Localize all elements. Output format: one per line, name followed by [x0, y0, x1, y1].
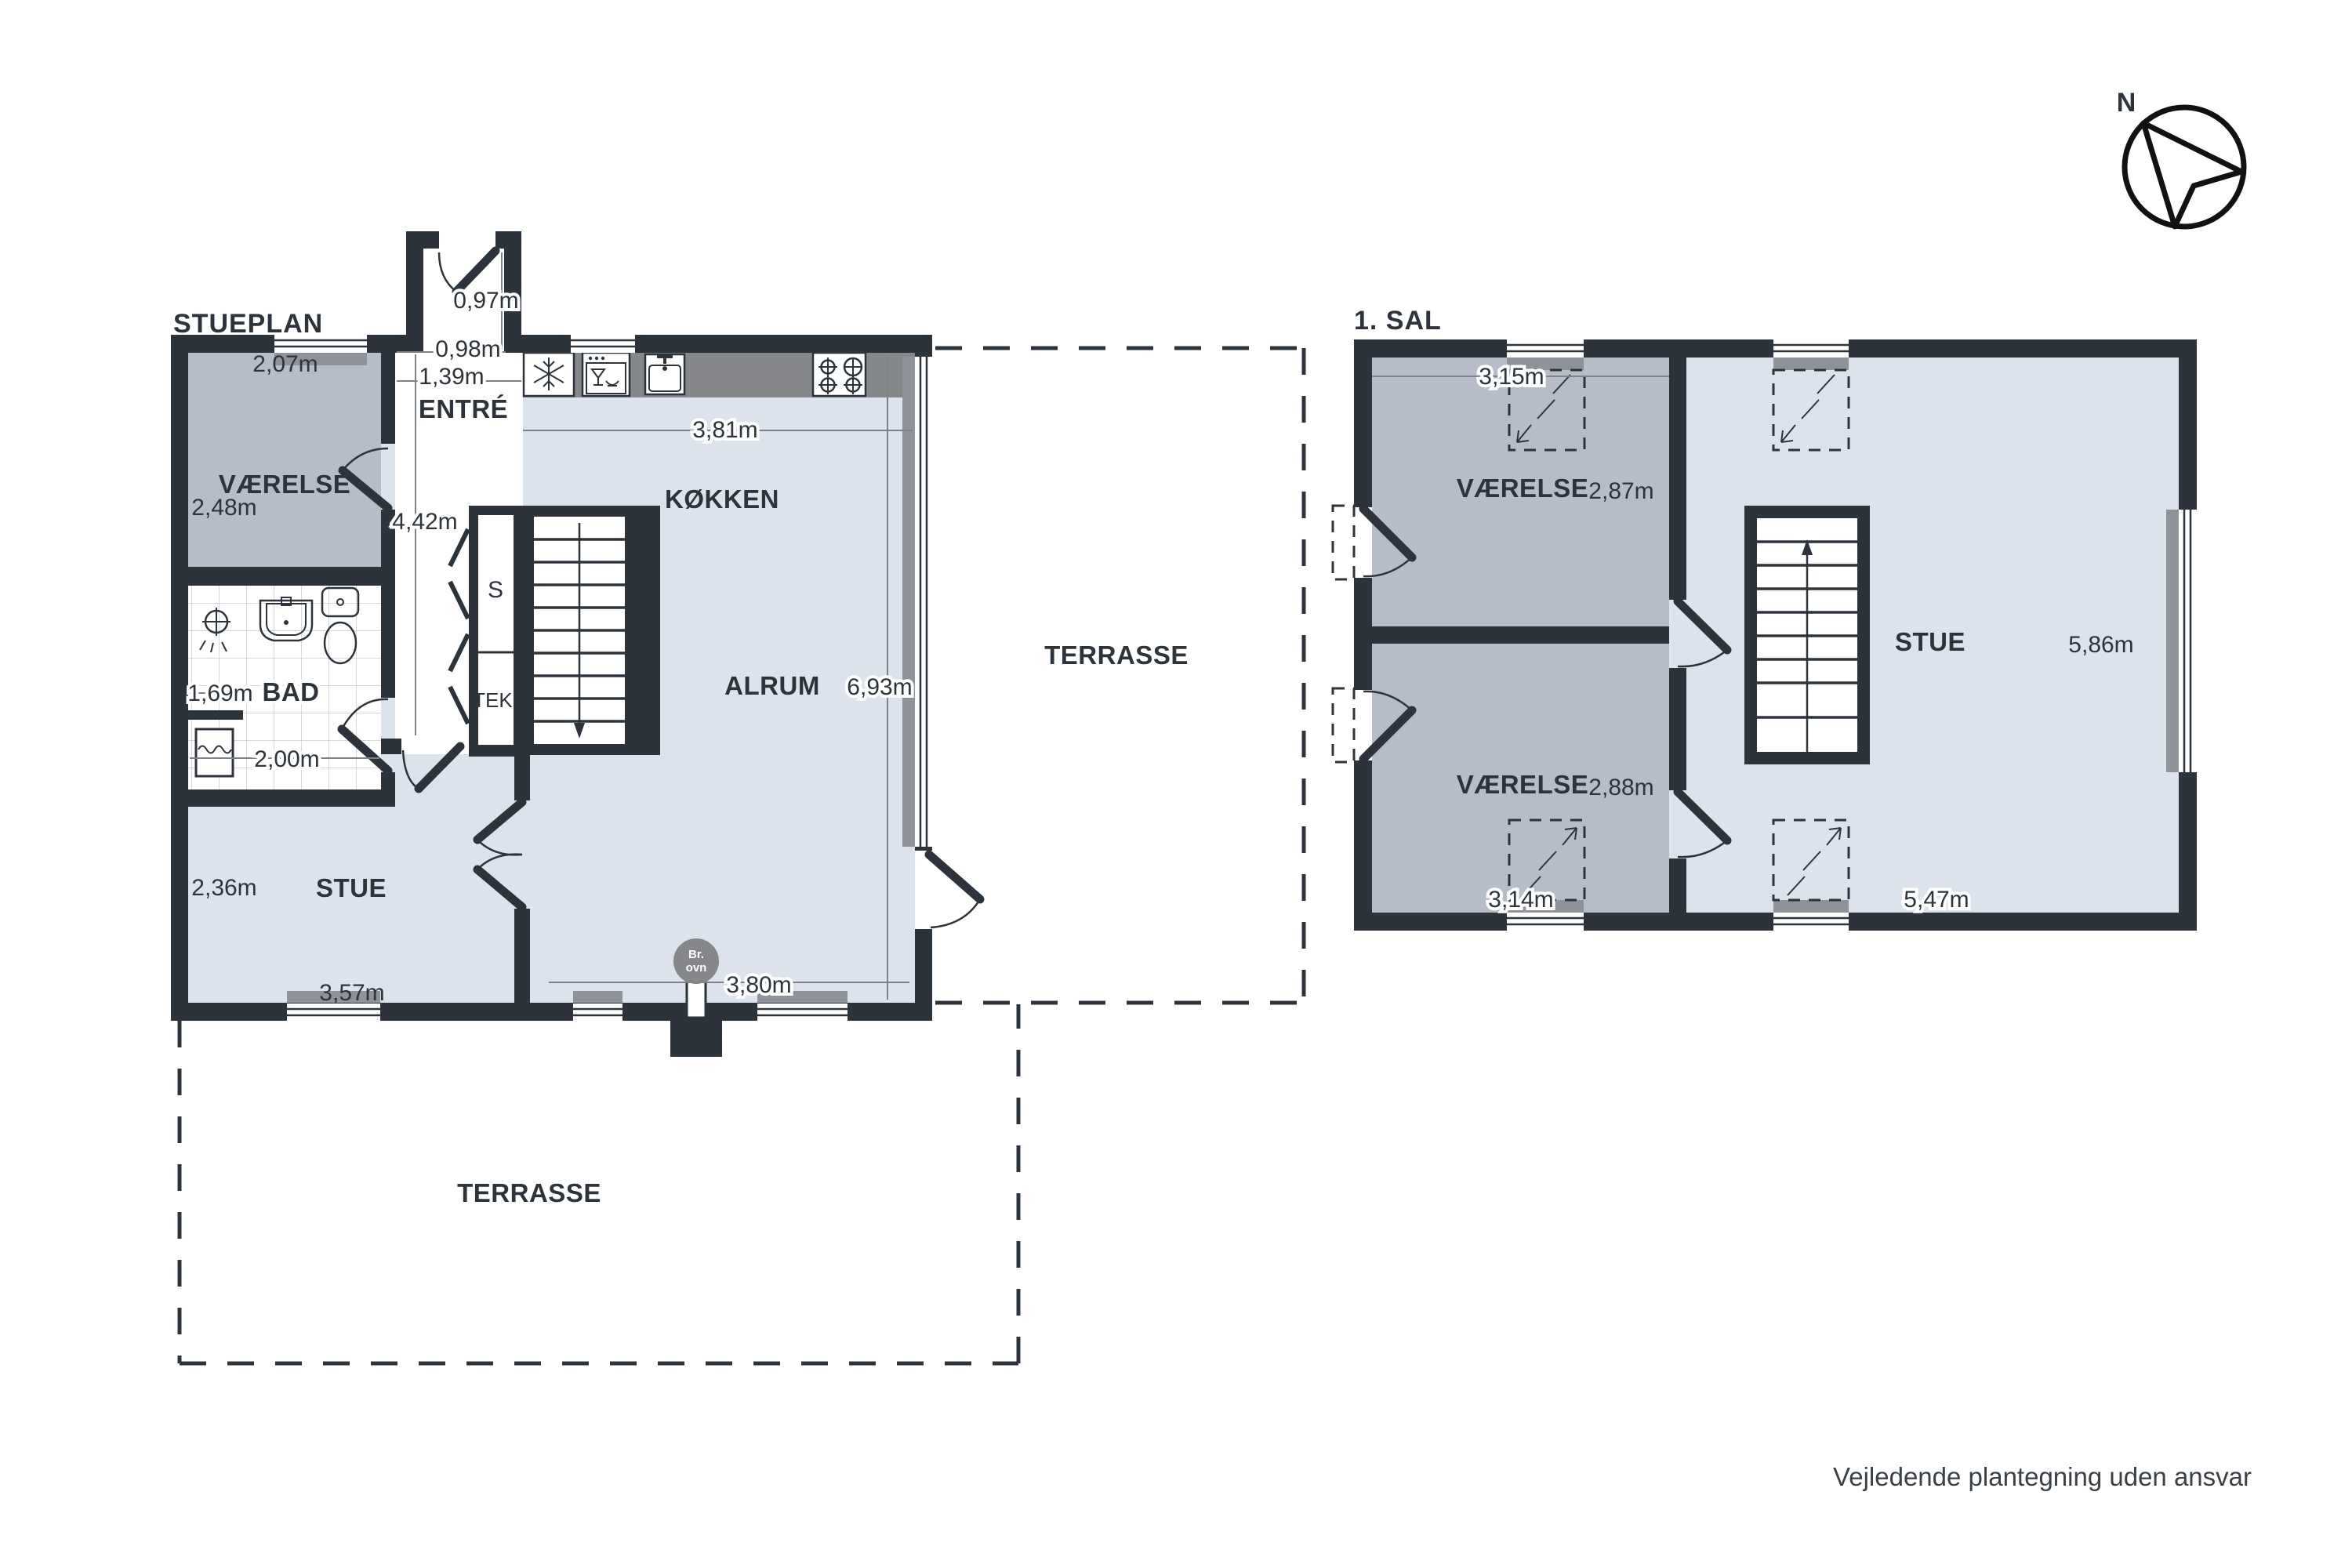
koekken-label: KØKKEN [665, 485, 779, 514]
dim-bad-nook: 1,69m [187, 681, 252, 706]
dim-sal-stue-right: 5,86m [2068, 632, 2133, 658]
closet-s-label: S [488, 577, 503, 603]
dim-vaerelse-south-bottom: 3,14m [1488, 887, 1553, 913]
compass-north-label: N [2117, 88, 2136, 118]
dim-sal-stue-bottom: 5,47m [1904, 887, 1969, 913]
staircase-down [523, 506, 660, 755]
dim-stue-left: 2,36m [191, 875, 256, 901]
kitchen-counter [523, 353, 915, 397]
landing-outline [1333, 688, 1354, 762]
disclaimer-text: Vejledende plantegning uden ansvar [1833, 1462, 2252, 1491]
bad-label: BAD [263, 677, 320, 706]
wood-stove-label2: ovn [686, 961, 707, 975]
dim-entre-depth: 0,98m [435, 336, 500, 362]
vaerelse-north-label: VÆRELSE [1457, 474, 1589, 503]
dim-vaerelse-top: 2,07m [252, 351, 318, 377]
stue-label: STUE [316, 873, 387, 902]
entre-label: ENTRÉ [419, 394, 508, 423]
closet-tek-label: TEK. [473, 688, 518, 712]
floorplan-page: Br. ovn STUEPLAN 0,97m 0,98m 1,39m ENTRÉ… [0, 0, 2352, 1568]
sal-stue-label: STUE [1895, 627, 1965, 656]
stove-icon [813, 353, 866, 396]
window-sill [573, 991, 622, 1004]
dim-entre-width: 1,39m [419, 364, 484, 390]
dim-alrum-bottom: 3,80m [726, 972, 791, 998]
dim-koekken-top: 3,81m [692, 417, 757, 443]
dim-front-door: 0,97m [453, 288, 518, 314]
kitchen-sink-icon [645, 354, 684, 394]
staircase-up [1744, 506, 1870, 764]
terrasse-east-label: TERRASSE [1044, 641, 1189, 670]
dim-hall: 4,42m [392, 509, 457, 535]
terrace-door-opening [915, 851, 932, 929]
terrasse-east-outline [935, 348, 1304, 1003]
compass: N [2117, 88, 2244, 227]
sal-title: 1. SAL [1354, 306, 1442, 336]
dim-vaerelse-north-top: 3,15m [1479, 364, 1544, 390]
dim-alrum-right: 6,93m [847, 674, 912, 700]
terrasse-south-label: TERRASSE [457, 1178, 601, 1207]
wood-stove-label1: Br. [688, 948, 704, 961]
dim-stue-bottom: 3,57m [319, 980, 384, 1006]
stueplan-plan: Br. ovn STUEPLAN 0,97m 0,98m 1,39m ENTRÉ… [171, 231, 1304, 1363]
window-sill [1773, 358, 1849, 370]
dim-bad-width: 2,00m [254, 746, 319, 772]
dim-vaerelse-north-right: 2,87m [1588, 478, 1653, 504]
dim-vaerelse-south-right: 2,88m [1588, 775, 1653, 800]
landing-outline [1333, 506, 1354, 579]
fridge-icon [524, 353, 574, 396]
alrum-label: ALRUM [724, 671, 820, 700]
window-sill [2166, 510, 2179, 772]
window-sill [1773, 900, 1849, 913]
stueplan-title: STUEPLAN [173, 309, 323, 339]
dim-vaerelse-left: 2,48m [191, 495, 256, 521]
washing-machine-icon [196, 729, 233, 776]
floorplan-drawing: Br. ovn STUEPLAN 0,97m 0,98m 1,39m ENTRÉ… [0, 0, 2352, 1568]
dishwasher-icon [583, 353, 630, 396]
sal-plan: 1. SAL 3,15m VÆRELSE 2,87m VÆRELSE 2,88m… [1333, 306, 2197, 931]
terrace-door-leaf [929, 855, 980, 899]
vaerelse-south-label: VÆRELSE [1457, 770, 1589, 799]
